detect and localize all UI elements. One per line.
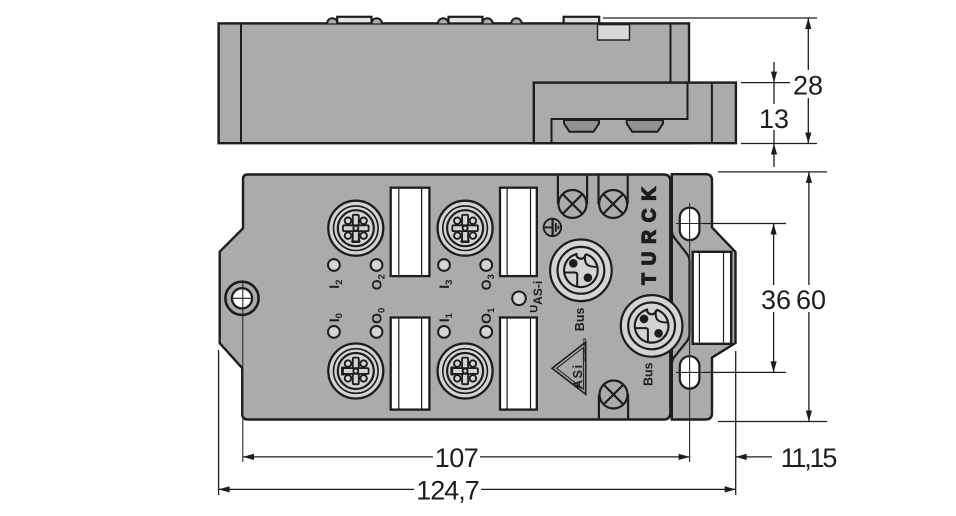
svg-text:Bus: Bus: [573, 308, 587, 332]
svg-text:11,15: 11,15: [781, 443, 837, 473]
svg-text:60: 60: [796, 285, 826, 315]
svg-text:13: 13: [759, 104, 789, 134]
svg-text:124,7: 124,7: [416, 475, 479, 505]
svg-text:107: 107: [435, 443, 479, 473]
svg-text:28: 28: [793, 70, 823, 100]
svg-text:INTERFACE: INTERFACE: [582, 338, 587, 362]
svg-text:Bus: Bus: [641, 362, 655, 386]
svg-text:36: 36: [761, 285, 791, 315]
svg-text:ASi: ASi: [571, 363, 585, 389]
svg-text:TURCK: TURCK: [640, 179, 661, 285]
